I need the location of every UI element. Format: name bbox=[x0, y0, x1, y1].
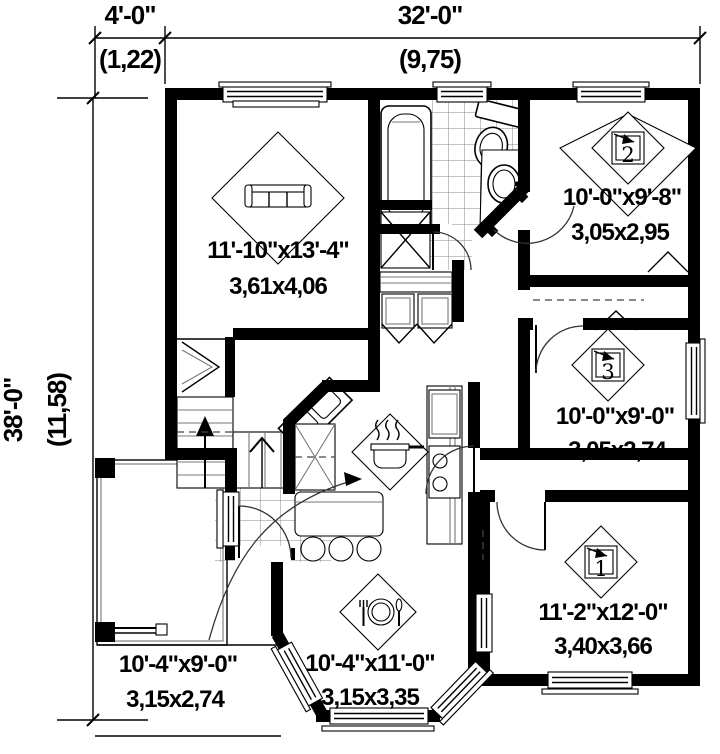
leader-arrowhead-icon bbox=[344, 472, 362, 486]
stool bbox=[329, 537, 353, 561]
refrigerator bbox=[429, 390, 460, 438]
living-size-metric: 3,61x4,06 bbox=[229, 273, 327, 300]
window-bedroom1 bbox=[542, 672, 638, 694]
stool bbox=[357, 537, 381, 561]
dim-height-imperial: 38'-0" bbox=[0, 378, 28, 443]
bifold-door-chevron bbox=[182, 342, 219, 392]
window-bathroom bbox=[433, 82, 491, 102]
kitchen-size-imperial: 10'-4"x9'-0" bbox=[119, 651, 237, 678]
kitchen-size-metric: 3,15x2,74 bbox=[126, 686, 225, 713]
wall-living-south bbox=[233, 328, 368, 340]
window-bay-right bbox=[428, 659, 493, 725]
sofa-icon bbox=[245, 185, 311, 207]
window-bay-bottom bbox=[322, 708, 434, 731]
kitchen-symbol bbox=[352, 414, 428, 490]
window-entry bbox=[217, 490, 239, 548]
window-bedroom2 bbox=[573, 82, 649, 102]
bedroom2-size-imperial: 10'-0"x9'-8" bbox=[563, 184, 681, 211]
porch-railing bbox=[115, 624, 167, 635]
stool bbox=[301, 537, 325, 561]
wall-dining-west bbox=[271, 560, 283, 636]
bedroom1-size-metric: 3,40x3,66 bbox=[554, 633, 652, 660]
wall-left bbox=[165, 100, 177, 460]
wall-bedroom3-west bbox=[518, 318, 530, 460]
floor-plan-page: 2 3 1 bbox=[0, 0, 720, 754]
bedroom2-number: 2 bbox=[621, 143, 634, 167]
burner bbox=[433, 477, 447, 491]
bedroom3-size-metric: 3,05x2,74 bbox=[568, 437, 667, 464]
bedroom2-size-metric: 3,05x2,95 bbox=[571, 219, 669, 246]
wall-bathroom-south bbox=[368, 224, 440, 234]
living-size-imperial: 11'-10"x13'-4" bbox=[207, 237, 349, 264]
linen-closet bbox=[381, 212, 430, 268]
dim-width-imperial: 32'-0" bbox=[398, 0, 463, 30]
wall-kitchen-west bbox=[283, 420, 295, 494]
laundry-closet bbox=[380, 272, 452, 343]
kitchen-east-counter bbox=[427, 386, 462, 544]
window-living bbox=[219, 82, 331, 107]
entry-closet bbox=[177, 337, 235, 397]
wall-bedroom2-south bbox=[518, 275, 700, 287]
bedroom3-symbol: 3 bbox=[572, 329, 644, 401]
bedroom3-number: 3 bbox=[601, 360, 614, 384]
bedroom1-door bbox=[497, 502, 545, 550]
washer bbox=[382, 294, 414, 328]
dining-size-metric: 3,15x3,35 bbox=[321, 684, 419, 711]
dining-size-imperial: 10'-4"x11'-0" bbox=[305, 650, 434, 677]
stove bbox=[429, 446, 460, 498]
floor-plan-drawing: 2 3 1 bbox=[0, 0, 720, 754]
dim-offset-imperial: 4'-0" bbox=[104, 0, 155, 30]
bedroom3-size-imperial: 10'-0"x9'-0" bbox=[556, 403, 674, 430]
bifold-door-chevron bbox=[648, 252, 688, 272]
dining-symbol bbox=[340, 574, 416, 650]
dim-width-metric: (9,75) bbox=[399, 44, 461, 74]
kitchen-snack-bar bbox=[295, 492, 383, 561]
bedroom1-size-imperial: 11'-2"x12'-0" bbox=[538, 599, 667, 626]
bedroom1-symbol: 1 bbox=[565, 526, 637, 598]
dim-height-metric: (11,58) bbox=[42, 373, 72, 447]
dim-offset-metric: (1,22) bbox=[99, 44, 161, 74]
kitchen-west-counter-dishwasher bbox=[295, 424, 335, 490]
dryer bbox=[418, 294, 452, 328]
porch-post bbox=[95, 622, 115, 642]
wall-living-east bbox=[368, 100, 380, 382]
window-bedroom1-west bbox=[476, 594, 492, 652]
porch-post bbox=[95, 458, 115, 478]
window-bedroom3 bbox=[686, 339, 705, 423]
bedroom1-number: 1 bbox=[594, 557, 607, 581]
